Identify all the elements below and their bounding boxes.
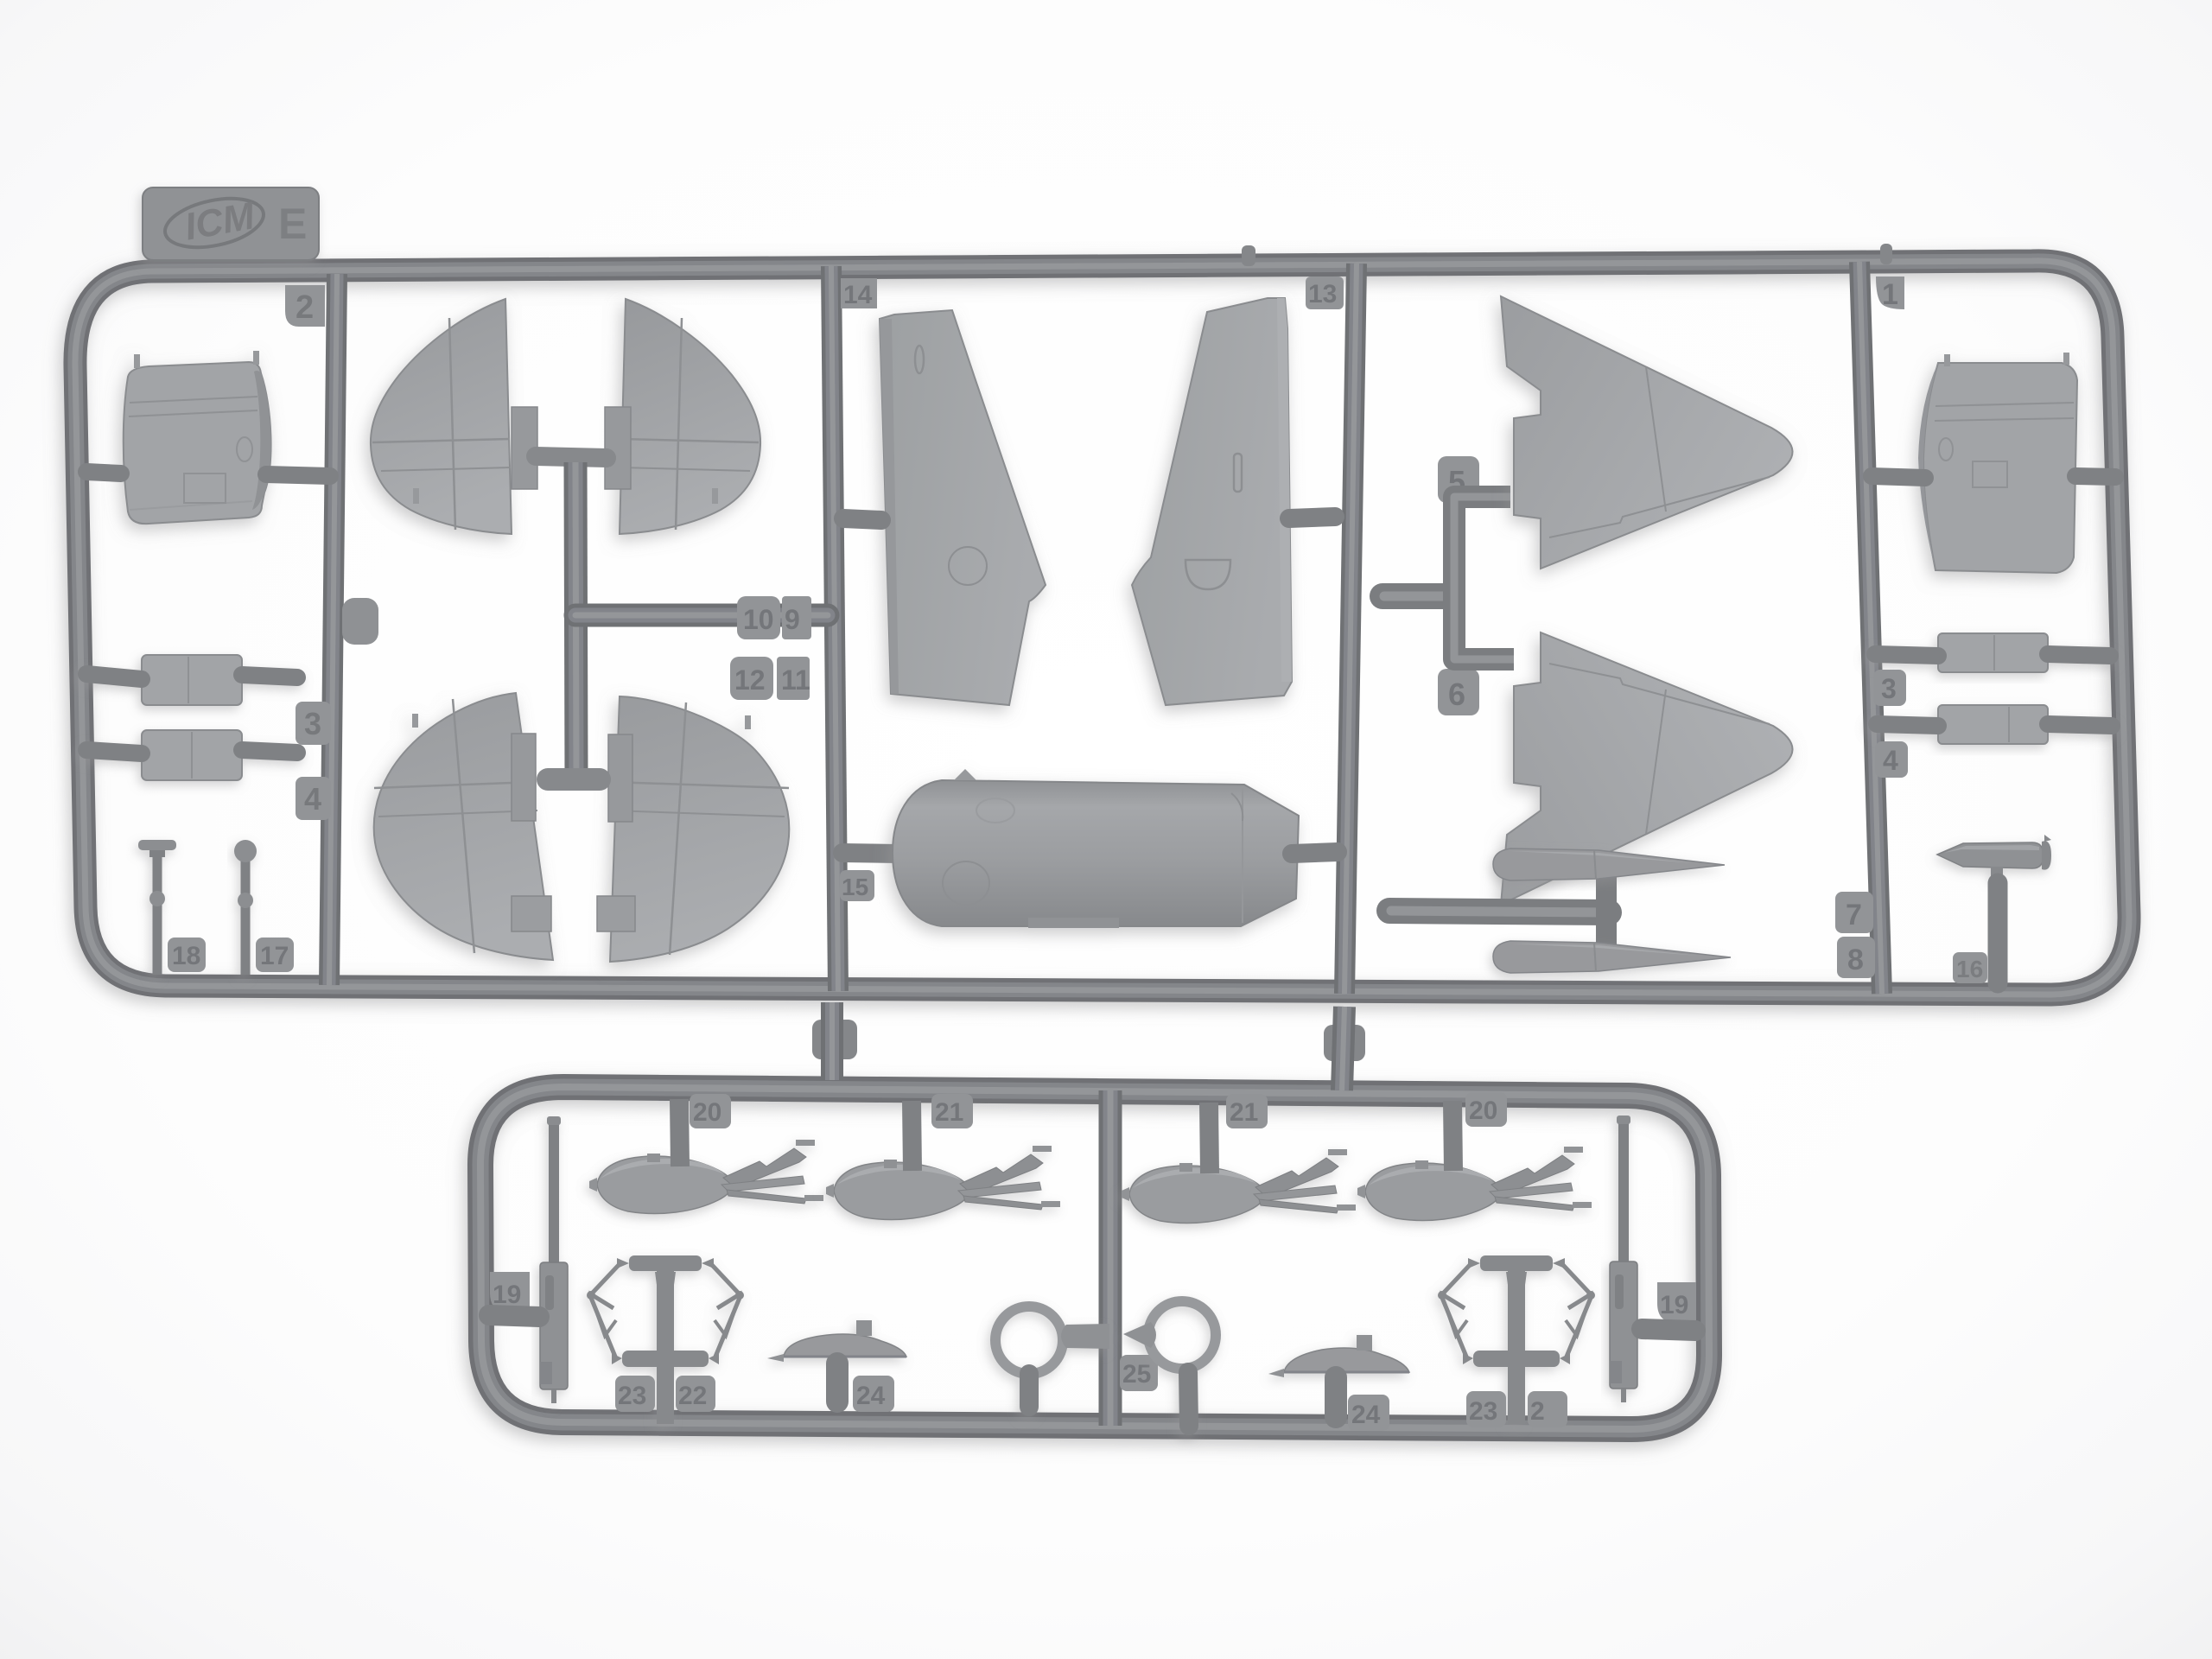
svg-text:19: 19: [1660, 1291, 1688, 1319]
svg-text:11: 11: [781, 664, 810, 696]
svg-text:17: 17: [260, 942, 289, 970]
svg-text:3: 3: [304, 706, 321, 741]
svg-text:12: 12: [734, 664, 766, 696]
svg-text:E: E: [278, 200, 307, 248]
svg-text:20: 20: [693, 1098, 721, 1127]
svg-text:25: 25: [1122, 1360, 1151, 1389]
svg-text:10: 10: [743, 604, 774, 635]
svg-text:19: 19: [493, 1281, 521, 1309]
svg-text:15: 15: [842, 874, 868, 900]
svg-text:24: 24: [1351, 1401, 1381, 1429]
svg-text:14: 14: [843, 281, 873, 309]
svg-text:23: 23: [618, 1382, 646, 1410]
svg-text:2: 2: [1530, 1397, 1545, 1426]
svg-text:13: 13: [1308, 280, 1337, 308]
svg-text:18: 18: [172, 942, 200, 970]
svg-text:20: 20: [1469, 1096, 1497, 1125]
svg-text:3: 3: [1881, 673, 1897, 704]
svg-text:1: 1: [1882, 278, 1898, 311]
svg-text:6: 6: [1448, 677, 1465, 712]
svg-text:8: 8: [1847, 944, 1864, 976]
svg-text:4: 4: [1883, 745, 1898, 776]
svg-text:16: 16: [1956, 956, 1983, 982]
svg-text:21: 21: [935, 1098, 963, 1127]
svg-text:7: 7: [1846, 899, 1862, 931]
svg-text:22: 22: [678, 1382, 707, 1410]
svg-text:9: 9: [785, 604, 800, 635]
svg-text:4: 4: [304, 781, 321, 817]
svg-text:21: 21: [1230, 1098, 1258, 1127]
svg-text:2: 2: [296, 289, 314, 326]
svg-text:24: 24: [856, 1382, 886, 1410]
svg-text:23: 23: [1469, 1397, 1497, 1426]
